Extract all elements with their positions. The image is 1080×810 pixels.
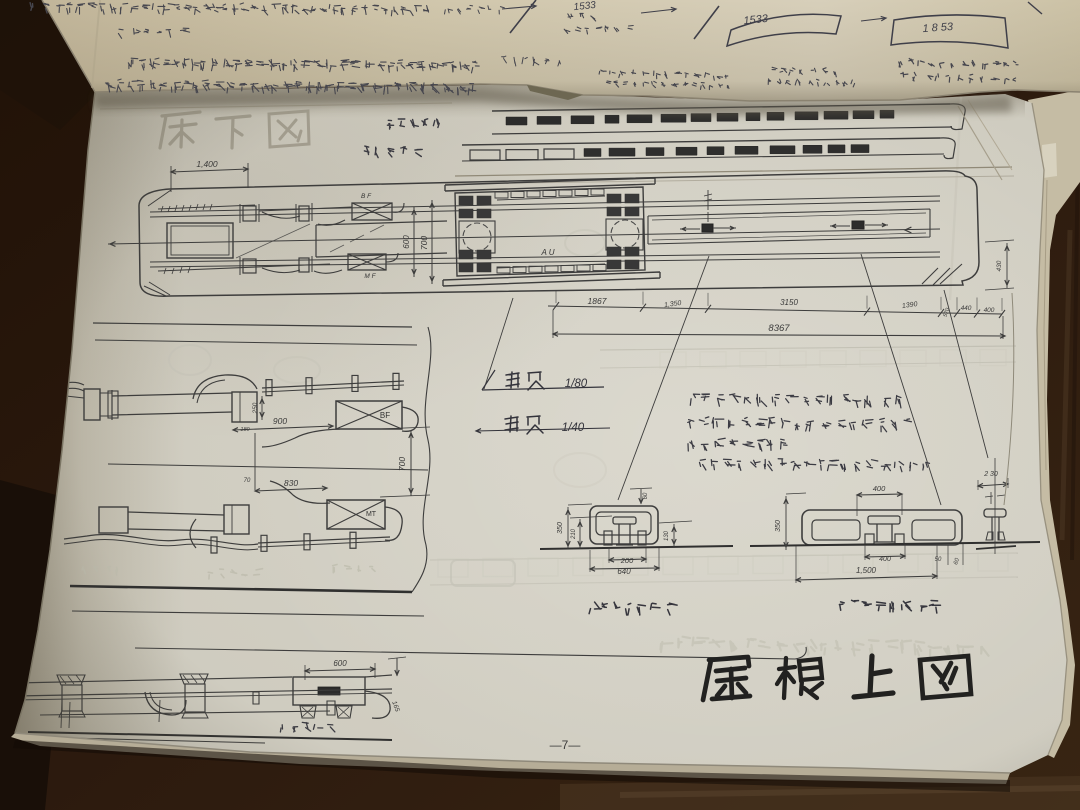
svg-text:1 8 53: 1 8 53 (922, 21, 954, 35)
